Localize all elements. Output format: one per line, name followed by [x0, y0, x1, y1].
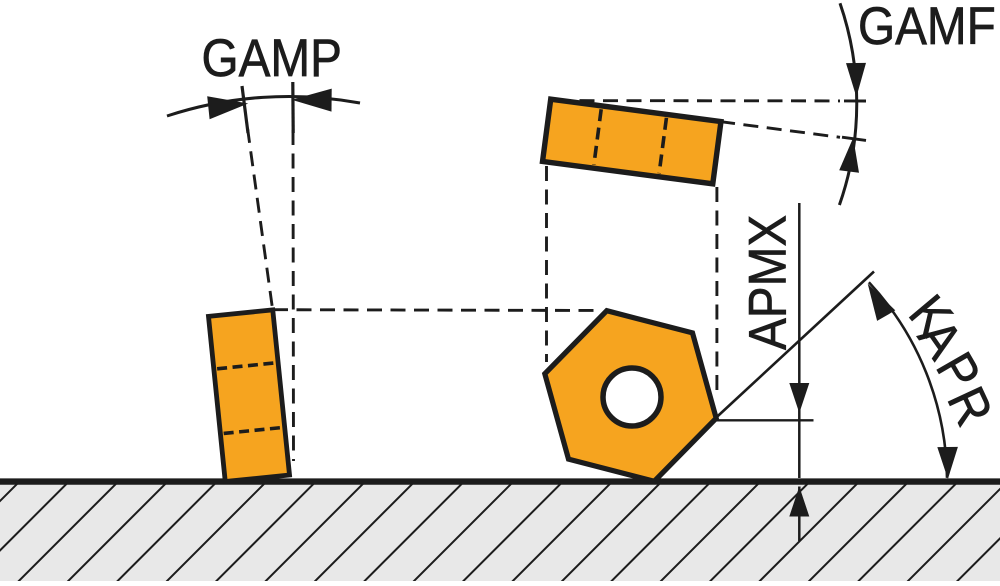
svg-text:APMX: APMX [737, 215, 797, 350]
svg-text:GAMP: GAMP [202, 27, 342, 87]
svg-text:GAMF: GAMF [858, 0, 996, 56]
